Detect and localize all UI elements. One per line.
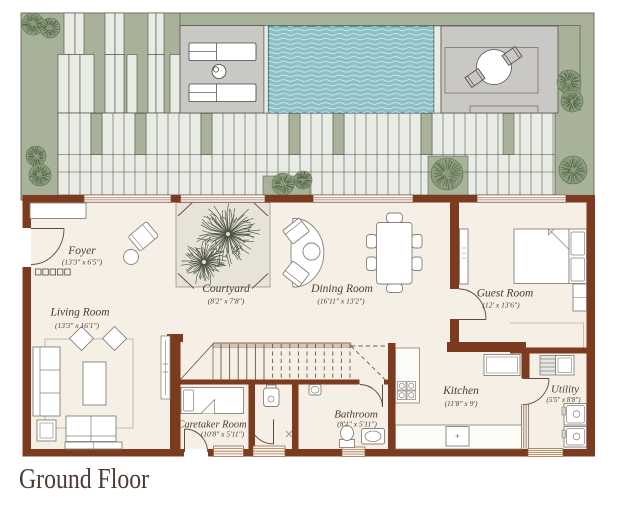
svg-text:(13'3" x 6'5"): (13'3" x 6'5") — [62, 258, 103, 267]
svg-text:Living Room: Living Room — [49, 307, 109, 319]
svg-text:Kitchen: Kitchen — [442, 385, 479, 397]
svg-text:(5'5" x 8'8"): (5'5" x 8'8") — [546, 396, 581, 404]
svg-text:(12' x 13'6"): (12' x 13'6") — [482, 301, 520, 310]
svg-text:(13'3" x 16'1"): (13'3" x 16'1") — [55, 321, 100, 330]
svg-text:Foyer: Foyer — [67, 245, 96, 257]
svg-text:Guest Room: Guest Room — [477, 288, 534, 300]
svg-text:(11'8" x 9'): (11'8" x 9') — [445, 399, 478, 408]
svg-text:(10'8" x 5'11"): (10'8" x 5'11") — [201, 430, 245, 439]
svg-text:Courtyard: Courtyard — [202, 283, 250, 295]
svg-text:(8'1" x 5'11"): (8'1" x 5'11") — [337, 420, 377, 429]
svg-text:Dining Room: Dining Room — [310, 283, 373, 295]
svg-text:(8'2" x 7'8"): (8'2" x 7'8") — [208, 297, 245, 306]
svg-text:Utility: Utility — [551, 384, 579, 396]
svg-text:(16'11" x 13'2"): (16'11" x 13'2") — [317, 297, 365, 306]
svg-text:Ground Floor: Ground Floor — [19, 464, 150, 495]
